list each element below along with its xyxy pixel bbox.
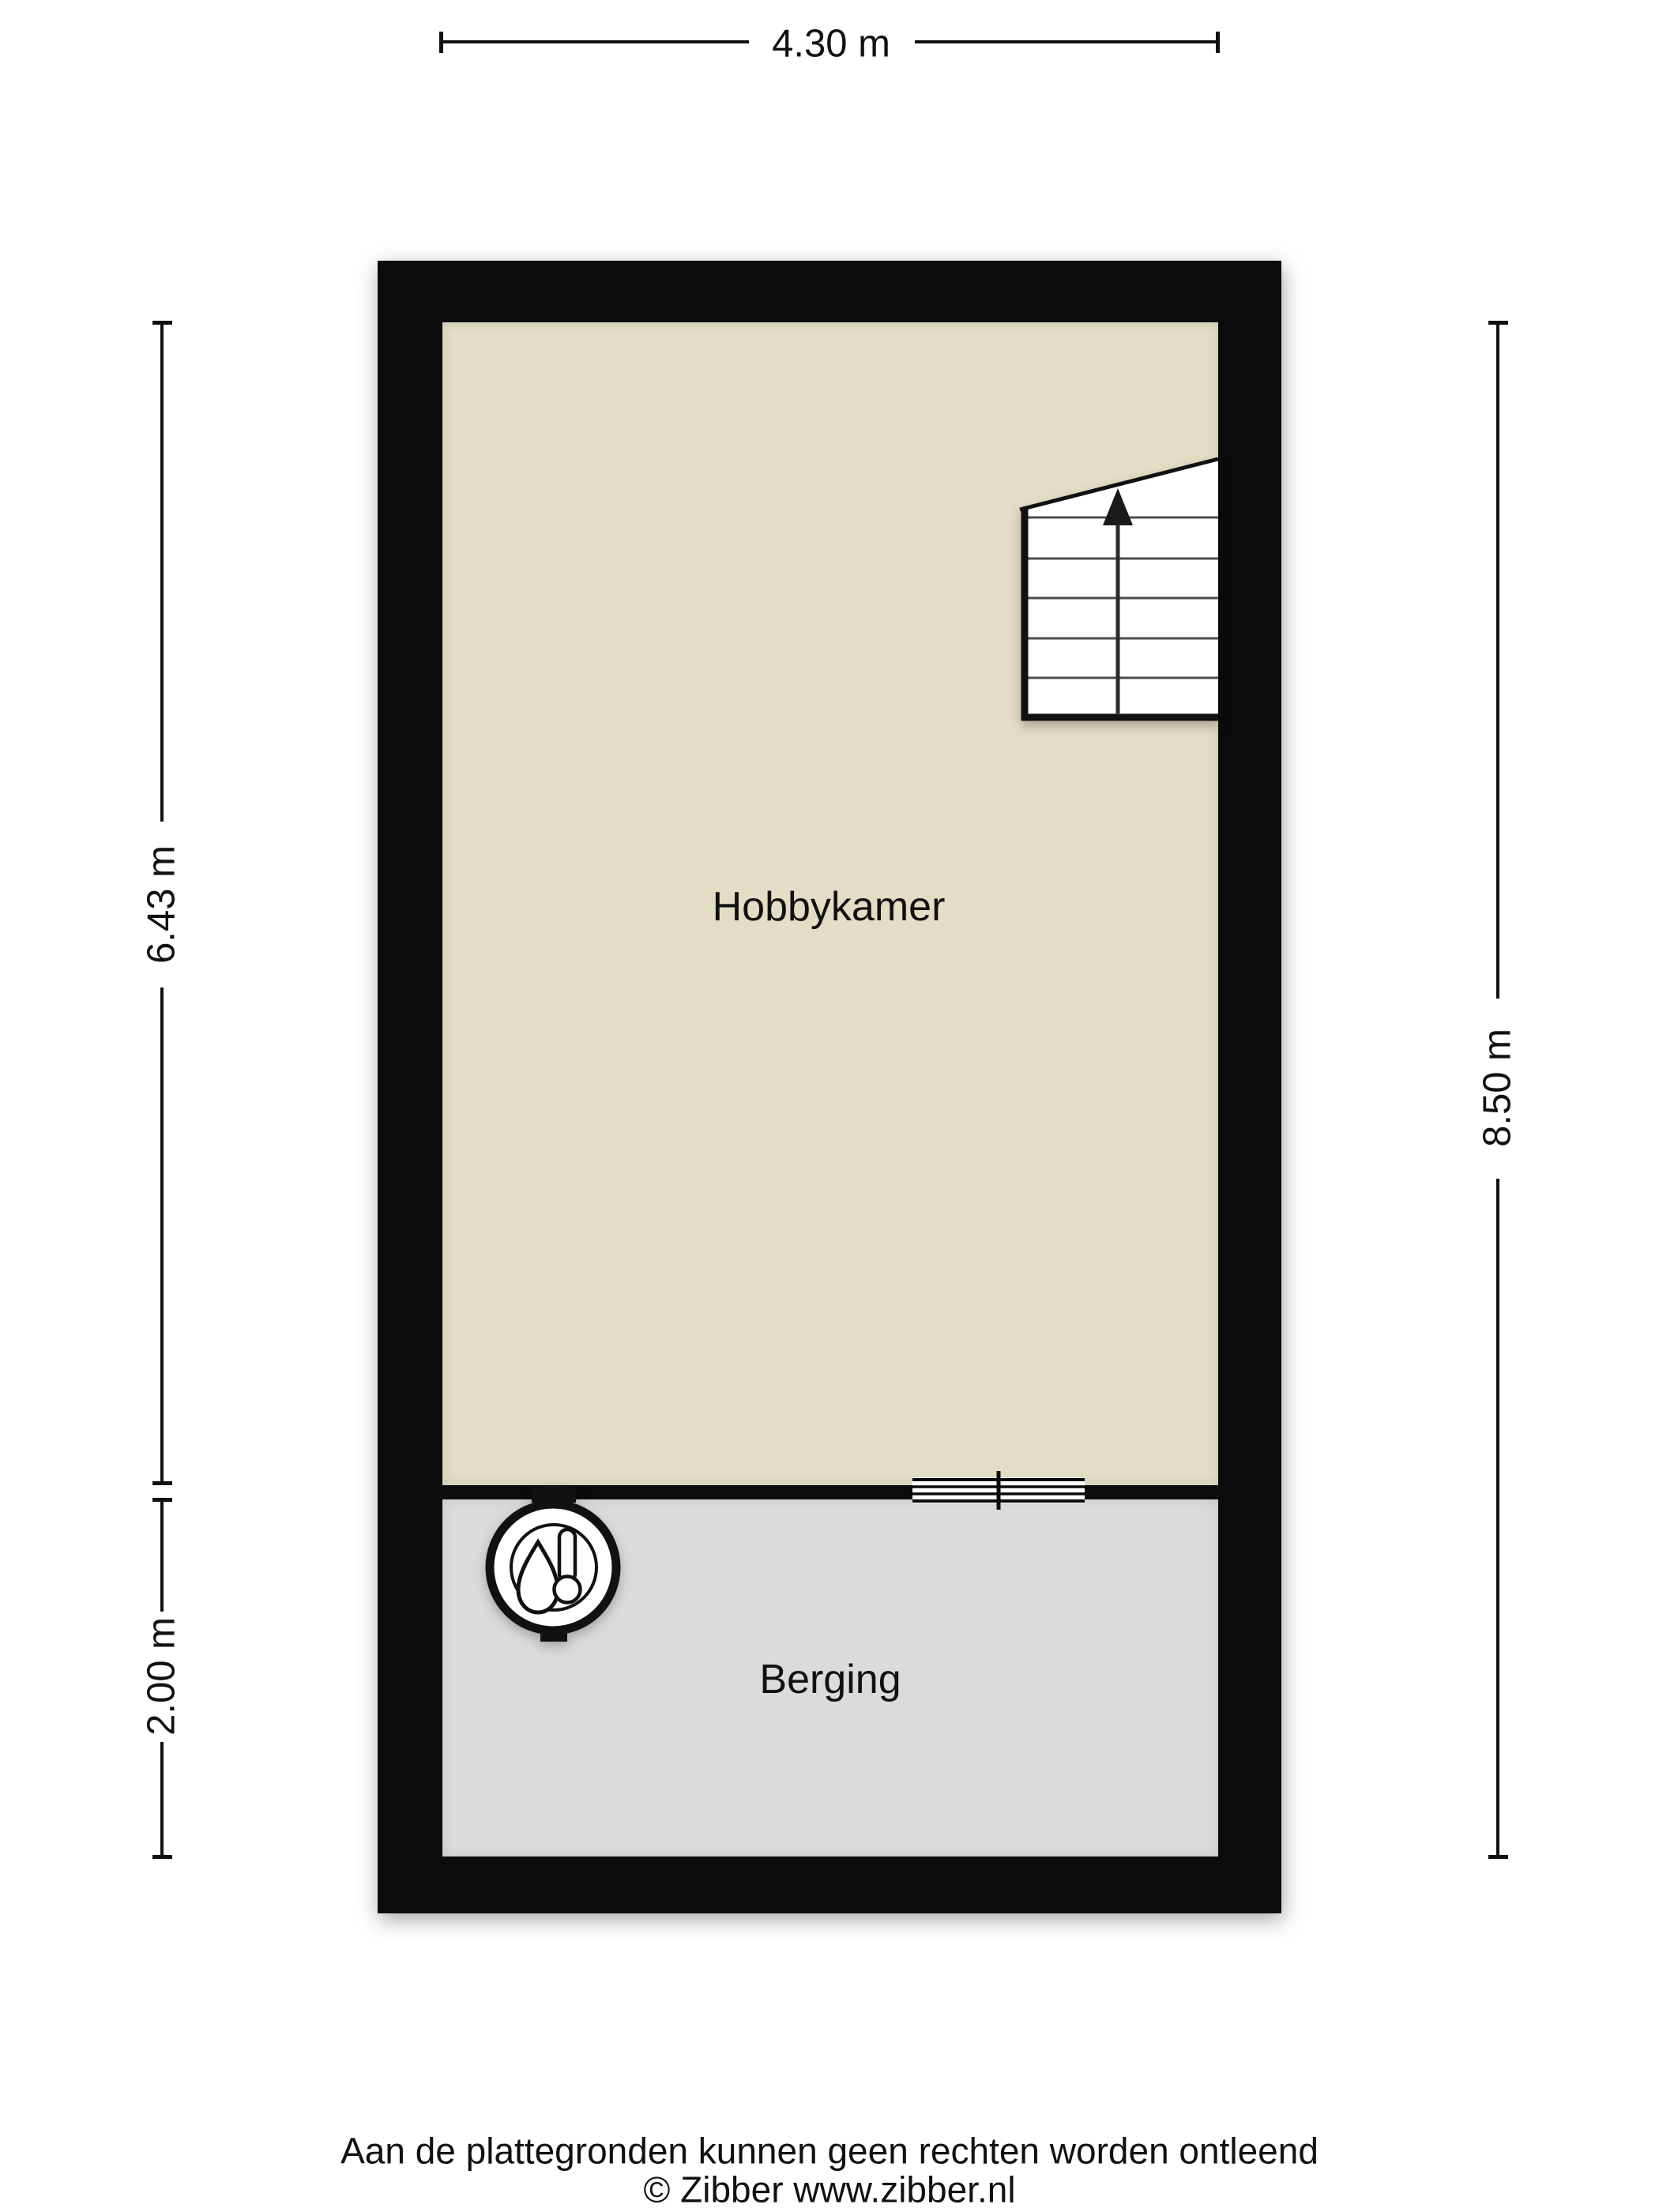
- footer-disclaimer: Aan de plattegronden kunnen geen rechten…: [340, 2131, 1319, 2172]
- room-label-hobbykamer: Hobbykamer: [713, 886, 946, 927]
- dimension-line: [160, 322, 164, 822]
- dimension-label: 2.00 m: [143, 1617, 182, 1736]
- room-label-berging: Berging: [759, 1659, 901, 1700]
- dimension-line: [915, 40, 1218, 43]
- dimension-tick: [152, 1498, 172, 1502]
- dimension-line: [1496, 322, 1499, 999]
- floorplan-page: 4.30 m 6.43 m 2.00 m 8.50 m: [0, 0, 1659, 2212]
- dimension-label: 4.30 m: [772, 25, 890, 64]
- dimension-line: [1496, 1179, 1499, 1857]
- dimension-line: [441, 40, 749, 43]
- dimension-tick: [439, 32, 443, 53]
- dimension-tick: [1488, 321, 1508, 325]
- dimension-line: [160, 987, 164, 1484]
- dimension-tick: [152, 1855, 172, 1859]
- dimension-tick: [1488, 1855, 1508, 1859]
- dimension-label: 8.50 m: [1479, 1029, 1518, 1147]
- dimension-line: [160, 1499, 164, 1612]
- dimension-tick: [152, 1481, 172, 1485]
- dimension-tick: [1216, 32, 1220, 53]
- dimension-tick: [152, 321, 172, 325]
- dimension-line: [160, 1742, 164, 1857]
- footer-copyright: © Zibber www.zibber.nl: [643, 2169, 1015, 2211]
- dimension-label: 6.43 m: [143, 845, 182, 964]
